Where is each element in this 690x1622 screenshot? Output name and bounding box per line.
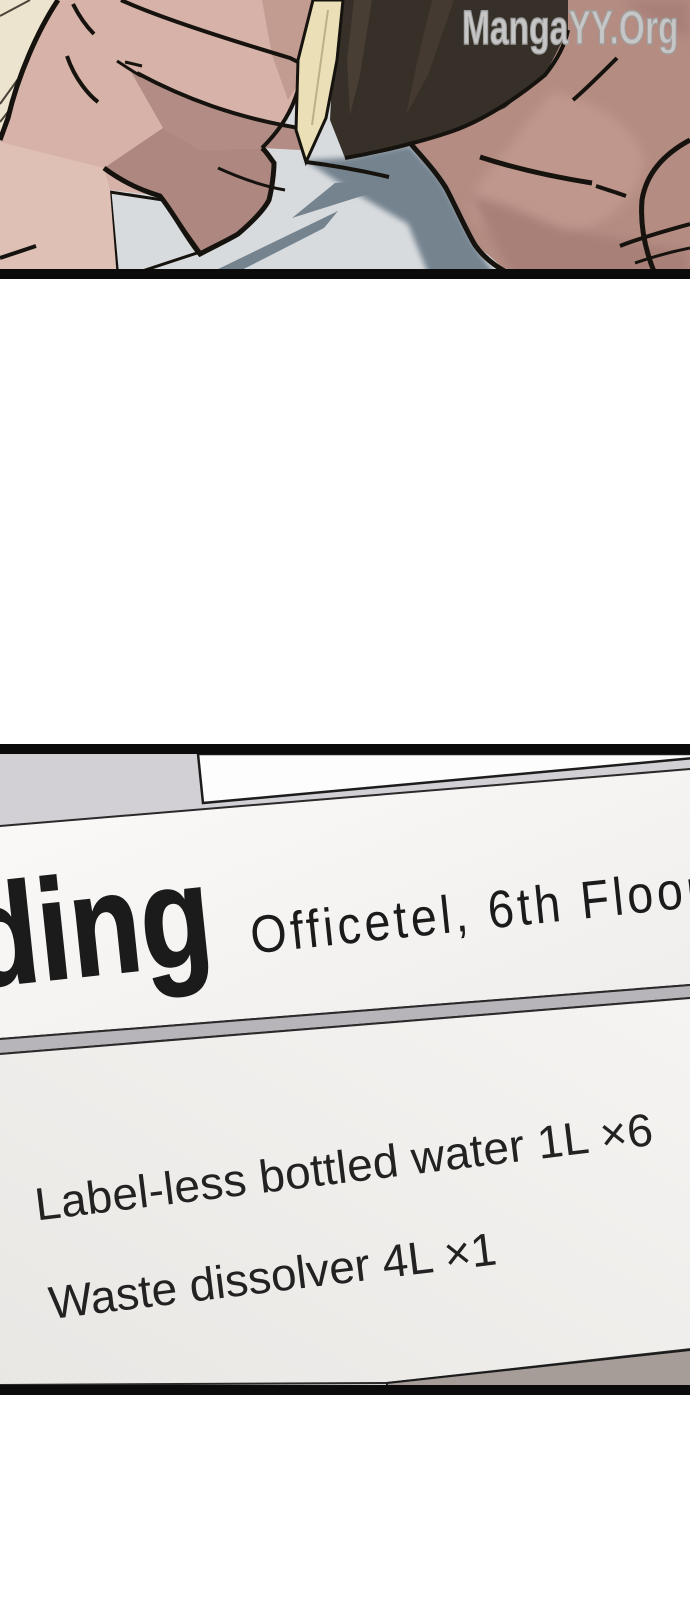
svg-text:MangaYY.Org: MangaYY.Org bbox=[462, 0, 679, 54]
